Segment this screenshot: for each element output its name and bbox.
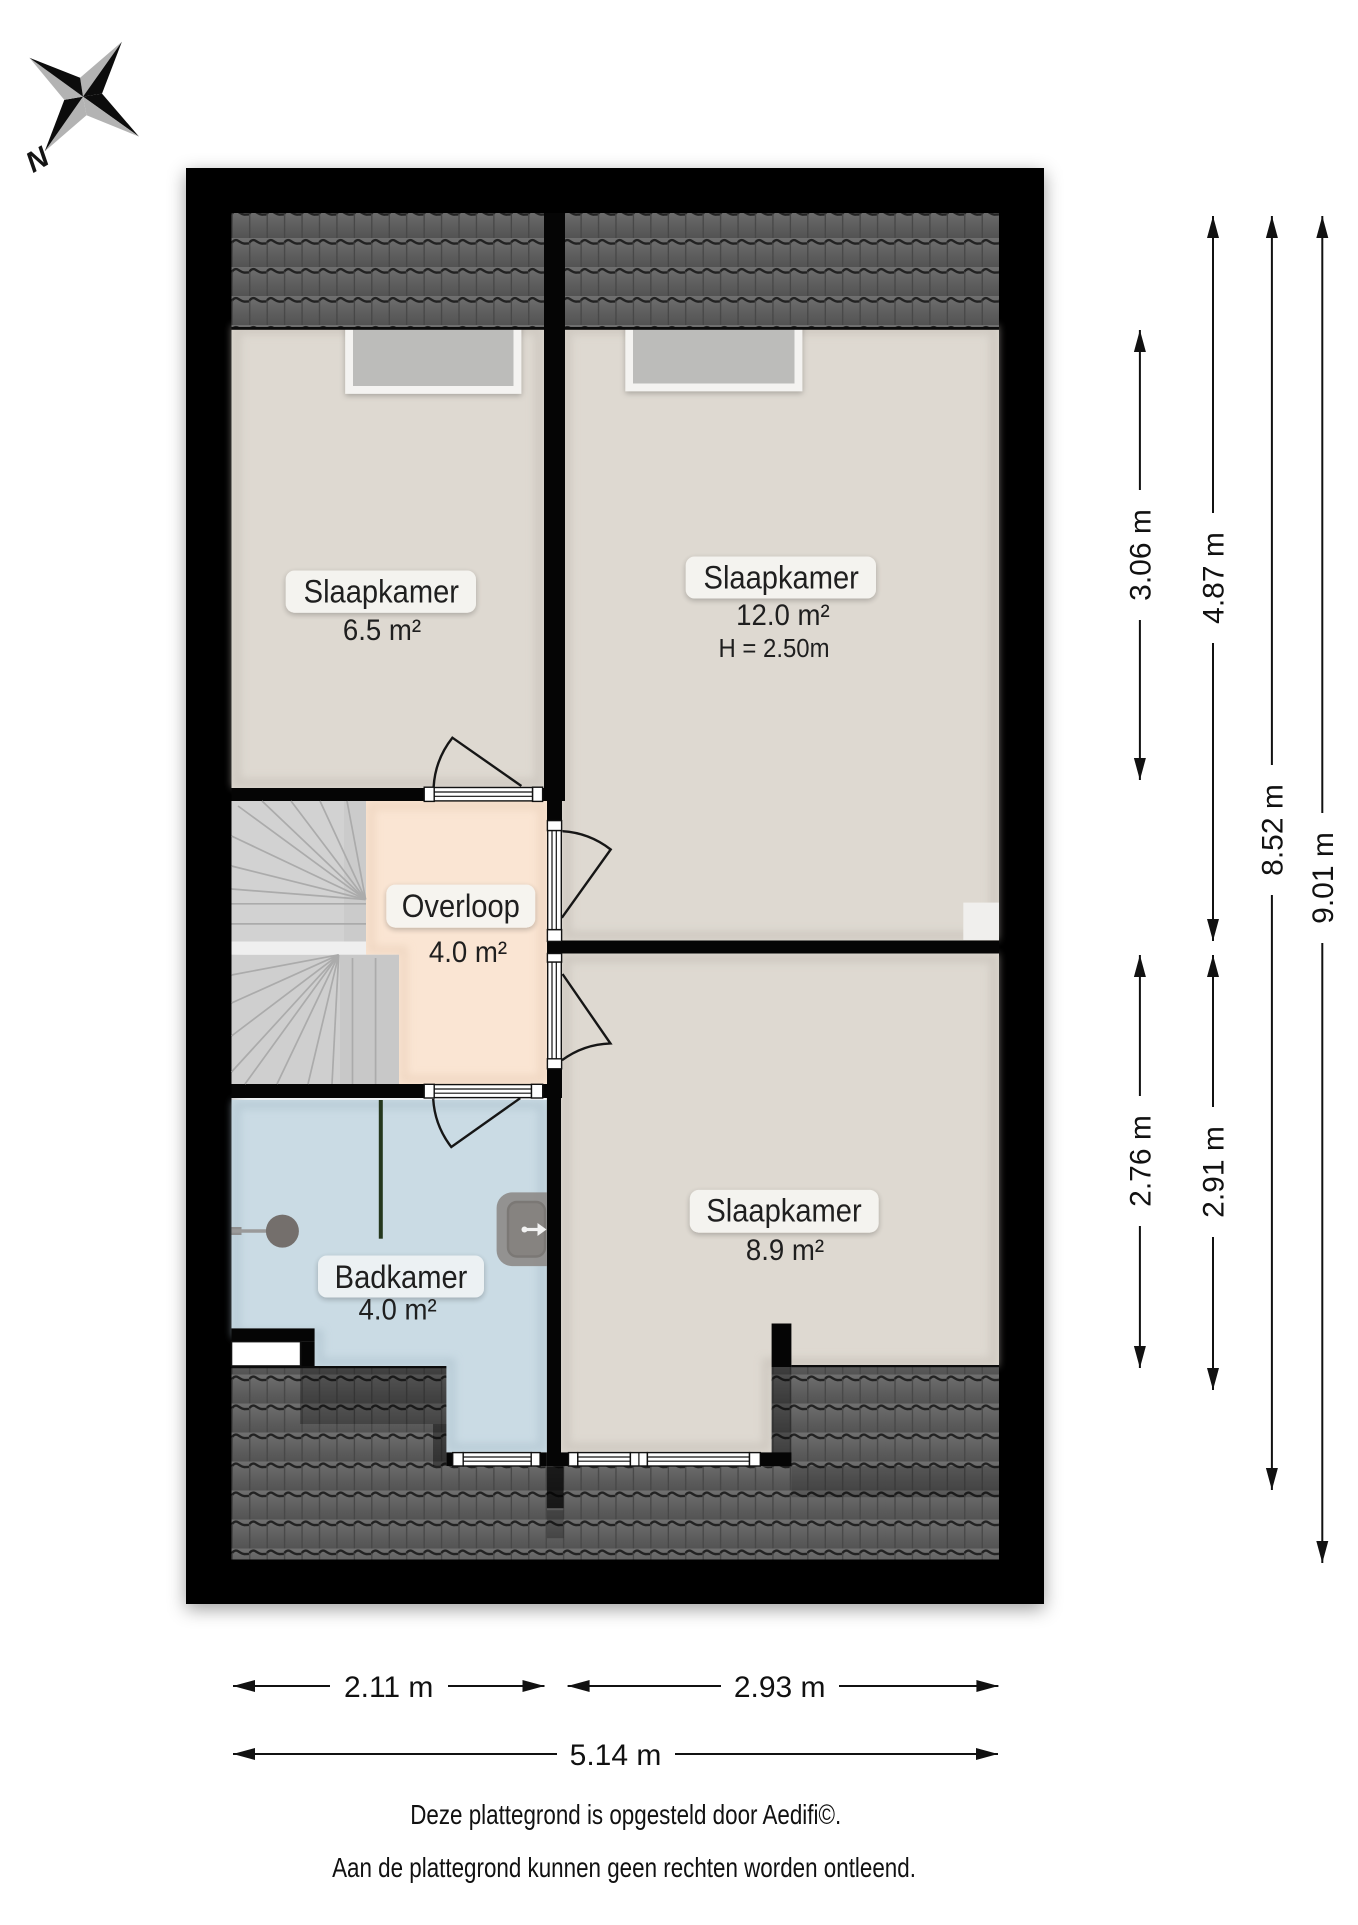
svg-text:4.0 m²: 4.0 m² — [359, 1293, 438, 1326]
svg-text:12.0 m²: 12.0 m² — [736, 599, 830, 632]
svg-text:8.9 m²: 8.9 m² — [746, 1234, 825, 1267]
svg-text:Slaapkamer: Slaapkamer — [704, 560, 859, 596]
svg-text:9.01 m: 9.01 m — [1307, 832, 1340, 924]
svg-text:8.52 m: 8.52 m — [1257, 784, 1290, 876]
svg-text:Slaapkamer: Slaapkamer — [304, 574, 459, 610]
svg-text:3.06 m: 3.06 m — [1125, 509, 1158, 601]
svg-text:Badkamer: Badkamer — [335, 1260, 468, 1296]
svg-text:Deze plattegrond is opgesteld: Deze plattegrond is opgesteld door Aedif… — [410, 1800, 841, 1831]
svg-text:2.93 m: 2.93 m — [734, 1671, 826, 1704]
svg-text:2.91 m: 2.91 m — [1198, 1126, 1231, 1218]
svg-text:5.14 m: 5.14 m — [570, 1739, 662, 1772]
svg-text:Aan de plattegrond kunnen geen: Aan de plattegrond kunnen geen rechten w… — [332, 1853, 916, 1884]
svg-text:4.87 m: 4.87 m — [1198, 532, 1231, 624]
svg-text:H = 2.50m: H = 2.50m — [719, 634, 830, 663]
svg-text:2.76 m: 2.76 m — [1125, 1115, 1158, 1207]
svg-text:2.11 m: 2.11 m — [344, 1671, 434, 1704]
svg-text:Overloop: Overloop — [402, 889, 520, 925]
svg-text:Slaapkamer: Slaapkamer — [706, 1193, 861, 1229]
svg-text:6.5 m²: 6.5 m² — [343, 614, 422, 647]
svg-text:4.0 m²: 4.0 m² — [429, 936, 508, 969]
